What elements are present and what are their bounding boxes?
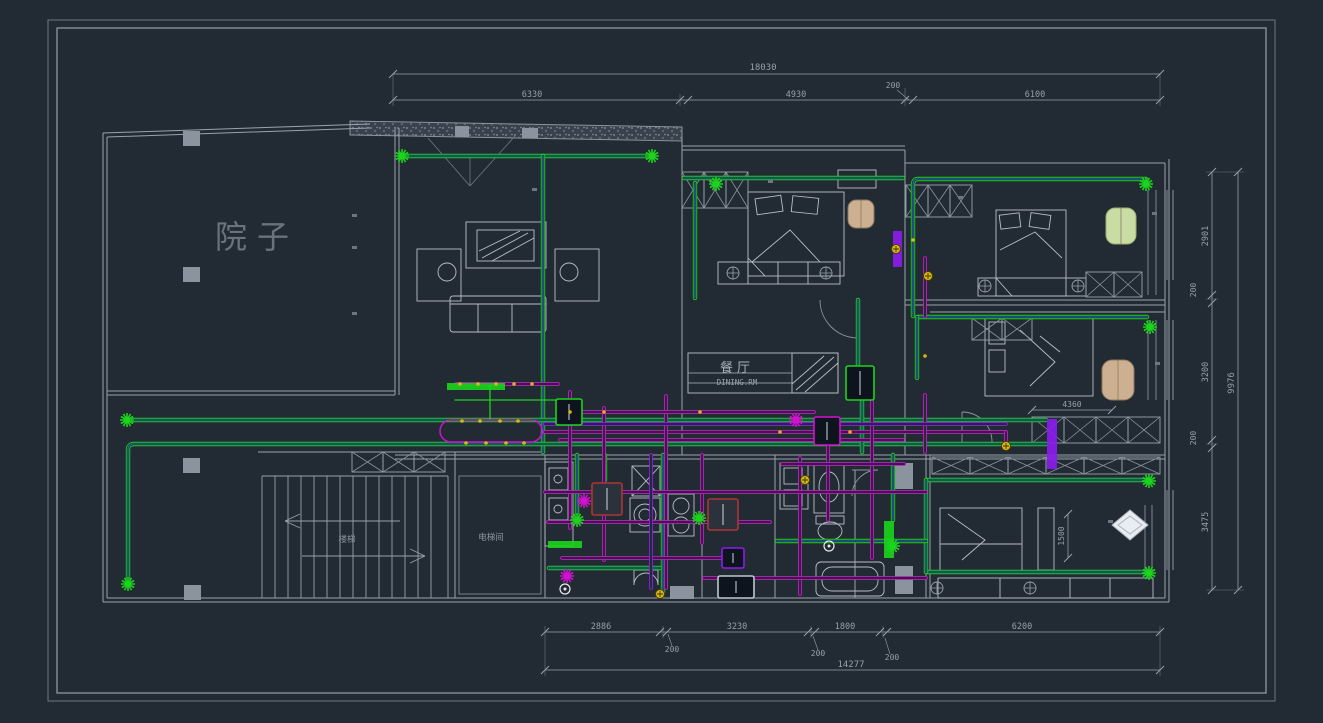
column [670,586,694,599]
lamp-symbol-dot [564,588,567,591]
sideboard-hatch [792,356,838,392]
dim-closet-depth: 1500 [1057,526,1066,545]
column [895,566,913,594]
wire-dot [512,382,516,386]
bed4-closet [1038,508,1054,570]
wardrobe-cell-x [1084,457,1122,474]
utility-basin [634,570,658,585]
column [183,131,200,146]
toilet-bowl [818,522,842,540]
light-fixture-star [645,149,659,163]
wardrobe-cell-x [1122,457,1160,474]
bed2-pillow-a [999,213,1021,229]
fixture-bars [447,231,1057,558]
dim-bottom-2: 3230 [727,622,747,632]
tv-hatch [479,231,534,261]
top-walls [682,146,1165,163]
room-labels: 院子 餐厅 DINING.RM 楼梯 电梯间 [215,218,758,545]
bed2-pillow-b [1029,213,1051,230]
side-cabinet-lines [1145,190,1156,570]
cad-drawing-canvas[interactable]: 18030 6330 4930 200 6100 2886 200 3230 2… [0,0,1323,723]
wardrobe-cell-x [1008,457,1046,474]
bed4-cabinet-dividers [1000,578,1110,598]
bed3-pillow-b [989,350,1005,372]
chair-right [560,263,578,281]
label-dining-en: DINING.RM [717,378,758,387]
desk-right [555,249,599,301]
tiny-note-mark [958,196,963,199]
wire-dot [911,238,915,242]
wardrobe-cell-x [972,318,1002,340]
wire-dot [516,419,520,423]
wire-dot [484,441,488,445]
washer-box [630,498,660,532]
wardrobe-cell-x [932,457,970,474]
dim-bed3-width: 4360 [1062,400,1081,409]
bed3 [985,318,1093,396]
light-fixture-star [1143,320,1157,334]
chair-left [438,263,456,281]
dim-top-total: 18030 [749,63,776,73]
bed4 [940,508,1022,572]
sofa-cushions [450,304,546,332]
dim-bottom-total: 14277 [837,660,864,670]
wire-dot [478,419,482,423]
stair-arrow-up [285,514,400,528]
dim-right-2: 3200 [1201,362,1211,382]
light-fixture-star [1142,474,1156,488]
wardrobe-cell-x [352,452,383,472]
label-stairs: 楼梯 [338,534,356,545]
ceiling-leaders [428,136,515,186]
bed1-blanket [748,230,820,276]
conduit-green [913,179,1146,316]
wardrobe-units [352,172,1160,474]
dim-top-200: 200 [886,81,901,90]
wire-dot [504,441,508,445]
tiny-note-mark [1152,212,1157,215]
walls [103,121,1173,602]
bed4-bottom-cabinet [938,578,1153,598]
wire-dot [923,354,927,358]
kitchen-sink-a-drain [554,475,562,483]
wardrobe-cell-x [1128,417,1160,443]
dim-top-2: 4930 [786,90,806,100]
dim-bottom-200b: 200 [811,649,826,658]
conduit-green [913,179,1146,316]
bed4-blanket [940,514,1022,560]
column [893,463,913,489]
dim-right-200a: 200 [1189,283,1198,298]
bed1-pillow-a [755,195,783,214]
door-arc-bedroom3 [962,412,992,442]
kitchen-sink-b [549,498,568,520]
column [455,126,469,137]
wardrobe-cell-x [928,185,950,217]
tiny-note-mark [1108,520,1113,523]
sofa [450,296,546,332]
dim-bottom-200a: 200 [665,645,680,654]
tiny-note-mark [352,246,357,249]
wire-dot [522,441,526,445]
lamp-symbol-dot [828,545,831,548]
bed2-drawer-row [978,278,1086,296]
light-fixture-star [395,149,409,163]
wardrobe-cell-x [970,457,1008,474]
label-courtyard: 院子 [215,218,299,256]
tiny-note-mark [352,214,357,217]
stove [668,494,694,536]
light-fixture-star [570,513,584,527]
dim-right-3: 3475 [1201,512,1211,532]
dim-top-3: 6100 [1025,90,1045,100]
conduit-magenta-loop [440,420,542,442]
dim-top-1: 6330 [522,90,542,100]
dim-bottom-3: 1800 [835,622,855,632]
dim-bottom-1: 2886 [591,622,611,632]
wire-dot [498,419,502,423]
bed1-pillow-b [791,196,819,215]
fixture-bar [1047,419,1057,469]
stove-burner-a [673,498,689,514]
light-fixture-star [560,569,574,583]
conduit-green [913,179,1146,316]
column [522,128,538,138]
bed2-blanket [996,232,1062,296]
wire-dot [458,382,462,386]
kitchen-sink-a [549,468,568,490]
wire-dot [476,382,480,386]
toilet-tank [816,516,844,524]
outer-wall-inner-line [107,128,1165,598]
wire-dot [530,382,534,386]
dim-right-200b: 200 [1189,431,1198,446]
tiny-note-mark [768,180,773,183]
light-fixture-star [121,577,135,591]
dim-bottom-200c: 200 [885,653,900,662]
door-arc-bedroom1 [820,300,858,338]
wardrobe-cell-x [906,185,928,217]
wire-dot [848,430,852,434]
courtyard-walls [107,128,399,395]
wire-dot [602,410,606,414]
wardrobe-cell-x [1002,318,1032,340]
tiny-annotations [352,180,1160,523]
wardrobe-cell-x [1114,272,1142,297]
column [183,458,200,473]
label-elevator: 电梯间 [478,532,504,543]
frame-outer-border [48,20,1275,701]
dim-bottom-4: 6200 [1012,622,1032,632]
tiny-note-mark [352,312,357,315]
bed1-drawer-dividers [748,262,808,284]
desk-left [417,249,461,301]
sheet-frame [48,20,1275,701]
tiny-note-mark [532,188,537,191]
window-strips [1167,190,1173,570]
wire-dot [778,430,782,434]
wardrobe-cell-x [1064,417,1096,443]
bed2 [996,210,1066,296]
light-fixture-star [120,413,134,427]
label-dining-cn: 餐厅 [720,360,754,376]
light-fixtures [120,149,1157,594]
wire-dot [464,441,468,445]
dim-right-1: 2901 [1201,226,1211,246]
wardrobe-cell-x [950,185,972,217]
dim-right-total: 9976 [1227,372,1237,394]
column [184,585,201,600]
kitchen-sink-b-drain [554,505,562,513]
wardrobe-cell-x [1096,417,1128,443]
wire-dot [494,382,498,386]
fixture-bar [548,541,582,548]
outer-wall-outline [103,124,1169,602]
wire-dot [698,410,702,414]
wardrobe-cell-x [1086,272,1114,297]
hatched-top-wall [350,121,682,141]
wire-dot [460,419,464,423]
bed3-blanket [1020,330,1060,386]
tiny-note-mark [1155,362,1160,365]
stair-arrow-down [302,549,425,563]
stove-burner-b [673,517,689,533]
wire-dot [568,410,572,414]
column [183,267,200,282]
bed1 [748,192,844,276]
